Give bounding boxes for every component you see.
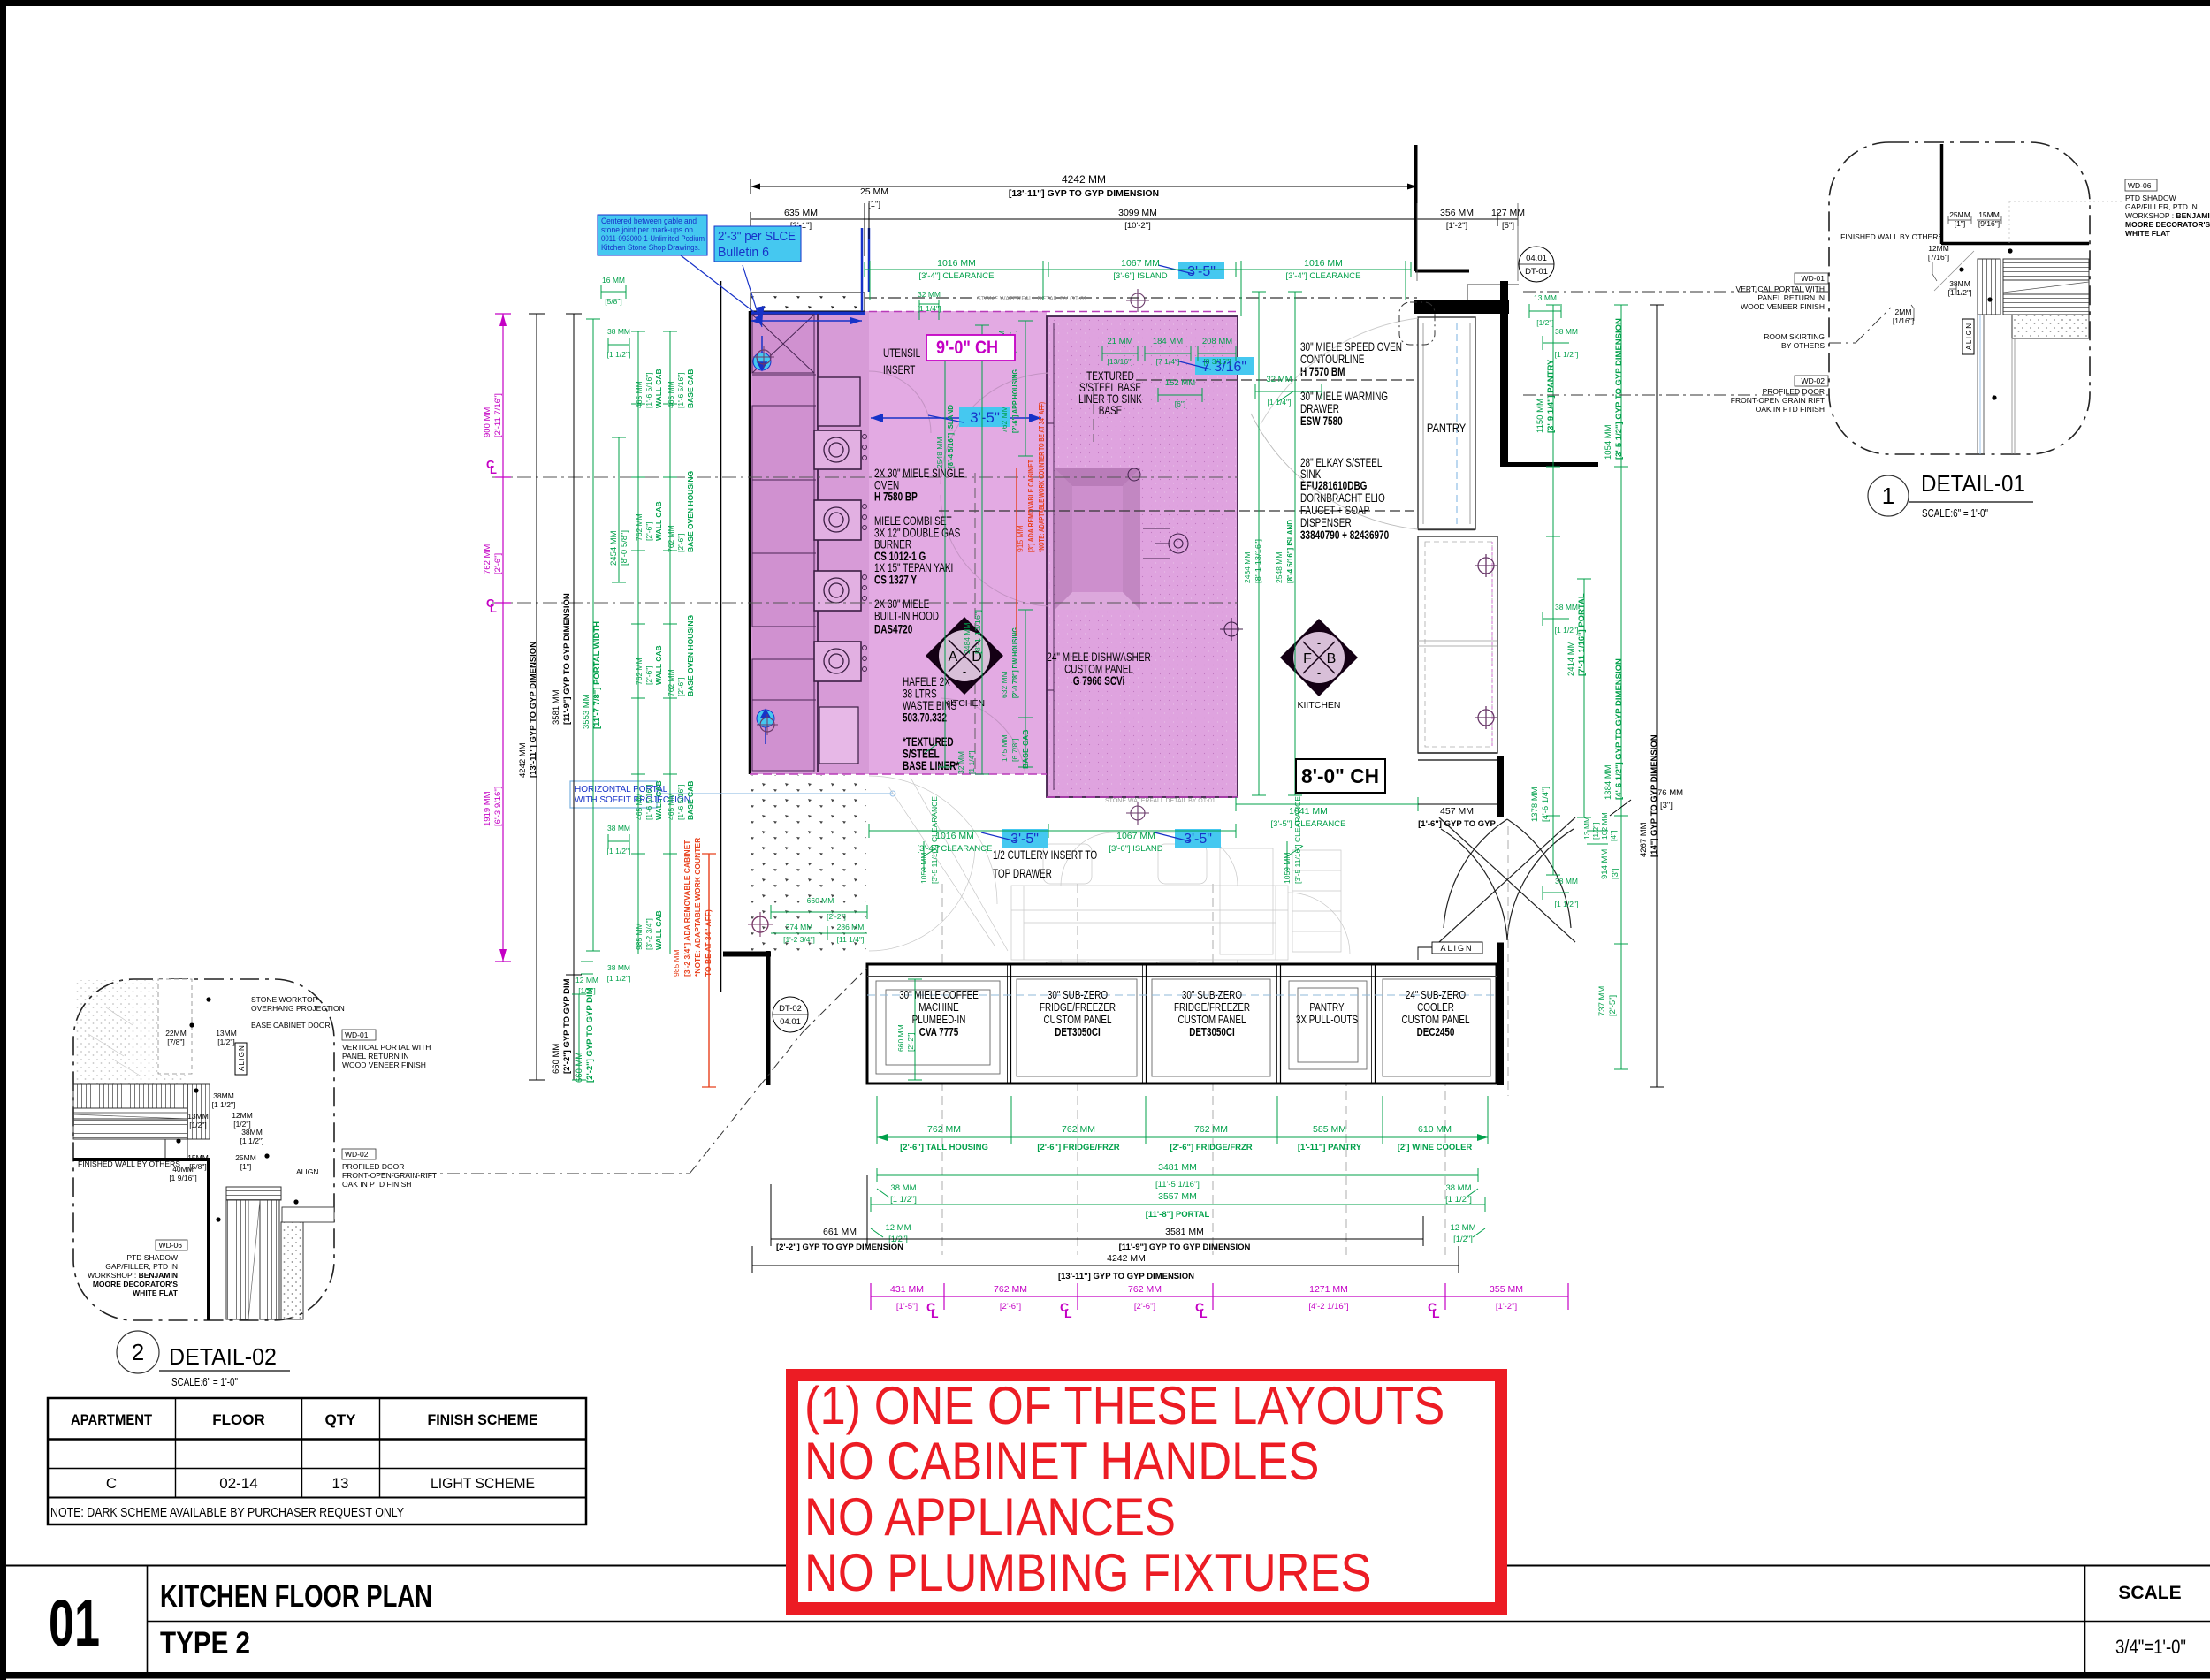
svg-text:[1'-2 3/4"]: [1'-2 3/4"] xyxy=(783,935,815,944)
svg-text:1016 MM: 1016 MM xyxy=(935,831,974,841)
svg-text:465 MM: 465 MM xyxy=(667,381,675,408)
svg-text:1067 MM: 1067 MM xyxy=(1121,258,1160,269)
svg-text:CS 1327 Y: CS 1327 Y xyxy=(874,573,917,587)
svg-text:13: 13 xyxy=(332,1475,349,1492)
svg-text:BASE: BASE xyxy=(1099,403,1123,417)
svg-text:[2'-5"]: [2'-5"] xyxy=(1608,995,1618,1016)
svg-text:38 MM: 38 MM xyxy=(1555,877,1578,886)
svg-text:[1 1/2"]: [1 1/2"] xyxy=(607,350,631,359)
svg-text:PLUMBED-IN: PLUMBED-IN xyxy=(912,1015,966,1027)
svg-text:13MM: 13MM xyxy=(216,1029,237,1038)
svg-text:1378 MM: 1378 MM xyxy=(1530,787,1540,822)
svg-text:04.01: 04.01 xyxy=(1526,254,1547,263)
svg-text:ROOM SKIRTING: ROOM SKIRTING xyxy=(1764,332,1825,341)
svg-text:STONE WATERFALL DETAIL BY OT-0: STONE WATERFALL DETAIL BY OT-01 xyxy=(977,296,1087,302)
svg-text:KITCHEN FLOOR PLAN: KITCHEN FLOOR PLAN xyxy=(160,1579,432,1614)
svg-text:16 MM: 16 MM xyxy=(602,276,625,285)
svg-text:CUSTOM PANEL: CUSTOM PANEL xyxy=(1044,1015,1112,1027)
svg-text:PANTRY: PANTRY xyxy=(1427,422,1467,435)
svg-text:1067 MM: 1067 MM xyxy=(1116,831,1155,841)
svg-text:APARTMENT: APARTMENT xyxy=(71,1411,153,1428)
svg-text:3553 MM: 3553 MM xyxy=(582,694,591,729)
svg-text:[1 1/2"]: [1 1/2"] xyxy=(1555,626,1579,635)
svg-text:[4"]: [4"] xyxy=(1609,831,1618,841)
svg-text:[3'-4"] CLEARANCE: [3'-4"] CLEARANCE xyxy=(918,844,993,854)
svg-text:431 MM: 431 MM xyxy=(890,1284,924,1295)
svg-text:WHITE FLAT: WHITE FLAT xyxy=(2125,229,2171,238)
svg-text:PTD SHADOW: PTD SHADOW xyxy=(2125,194,2176,202)
svg-text:[1'-6 5/16"]: [1'-6 5/16"] xyxy=(644,784,653,820)
svg-text:12 MM: 12 MM xyxy=(1450,1223,1475,1233)
svg-text:184 MM: 184 MM xyxy=(1153,337,1183,346)
svg-text:WORKSHOP : BENJAMIN: WORKSHOP : BENJAMIN xyxy=(2125,211,2210,220)
svg-text:PROFILED DOOR: PROFILED DOOR xyxy=(1763,387,1825,396)
svg-text:900 MM: 900 MM xyxy=(483,407,492,437)
svg-text:[2'-2"] GYP TO GYP DIMENSION: [2'-2"] GYP TO GYP DIMENSION xyxy=(776,1243,903,1252)
svg-text:[6 7/8"]: [6 7/8"] xyxy=(1010,738,1019,762)
svg-text:[11'-9"] GYP TO GYP DIMENSION: [11'-9"] GYP TO GYP DIMENSION xyxy=(1119,1243,1251,1252)
svg-text:[3'] ADA REMOVABLE CABINET: [3'] ADA REMOVABLE CABINET xyxy=(1026,459,1035,552)
svg-text:H 7580 BP: H 7580 BP xyxy=(874,490,918,504)
svg-text:457 MM: 457 MM xyxy=(1440,806,1474,817)
svg-text:WOOD VENEER FINISH: WOOD VENEER FINISH xyxy=(1741,302,1825,311)
svg-text:3'-5": 3'-5" xyxy=(970,409,1000,426)
svg-text:QTY: QTY xyxy=(325,1411,357,1428)
svg-text:762 MM: 762 MM xyxy=(1000,406,1009,433)
svg-text:25MM: 25MM xyxy=(235,1153,256,1162)
svg-text:H 7570 BM: H 7570 BM xyxy=(1300,364,1345,378)
svg-text:WALL CAB: WALL CAB xyxy=(654,645,663,685)
svg-text:-: - xyxy=(1317,666,1321,680)
svg-text:[1'-6"] GYP TO GYP: [1'-6"] GYP TO GYP xyxy=(1418,819,1496,829)
svg-text:[13'-11"] GYP TO GYP DIMENSION: [13'-11"] GYP TO GYP DIMENSION xyxy=(529,642,538,778)
svg-text:LIGHT SCHEME: LIGHT SCHEME xyxy=(431,1475,535,1492)
svg-text:30" SUB-ZERO: 30" SUB-ZERO xyxy=(1182,990,1242,1002)
svg-text:ALIGN: ALIGN xyxy=(1965,322,1973,350)
svg-text:STONE WATERFALL DETAIL BY OT-0: STONE WATERFALL DETAIL BY OT-01 xyxy=(1105,798,1215,804)
svg-text:[10'-2"]: [10'-2"] xyxy=(1124,221,1150,231)
svg-text:585 MM: 585 MM xyxy=(1313,1124,1346,1135)
svg-text:[1'-6 5/16"]: [1'-6 5/16"] xyxy=(676,372,685,408)
svg-text:[1/2"]: [1/2"] xyxy=(1453,1235,1473,1244)
svg-text:ALIGN: ALIGN xyxy=(238,1045,246,1071)
svg-text:[2'-6"]: [2'-6"] xyxy=(644,665,653,685)
svg-text:32 MM: 32 MM xyxy=(918,290,941,299)
svg-text:985 MM: 985 MM xyxy=(672,949,681,977)
svg-text:[7 1/4"]: [7 1/4"] xyxy=(1156,357,1180,366)
svg-text:762 MM: 762 MM xyxy=(635,658,644,685)
svg-text:[9/16"]: [9/16"] xyxy=(1978,219,2000,228)
svg-text:[3'-2 3/4"] ADA REMOVABLE CABI: [3'-2 3/4"] ADA REMOVABLE CABINET xyxy=(682,840,691,977)
svg-text:3557 MM: 3557 MM xyxy=(1158,1191,1197,1202)
svg-text:[1 1/2"]: [1 1/2"] xyxy=(1555,900,1579,908)
svg-text:175 MM: 175 MM xyxy=(1000,734,1009,762)
svg-text:661 MM: 661 MM xyxy=(823,1227,857,1237)
svg-text:985 MM: 985 MM xyxy=(635,923,644,950)
svg-text:FRONT-OPEN GRAIN RIFT: FRONT-OPEN GRAIN RIFT xyxy=(1731,396,1825,405)
svg-text:FRIDGE/FREEZER: FRIDGE/FREEZER xyxy=(1174,1002,1250,1015)
svg-text:DT-01: DT-01 xyxy=(1525,267,1548,277)
svg-text:ALIGN: ALIGN xyxy=(1440,944,1473,953)
svg-text:BASE OVEN HOUSING: BASE OVEN HOUSING xyxy=(686,471,695,552)
svg-text:[4'-6 1/4"]: [4'-6 1/4"] xyxy=(1541,787,1551,822)
svg-text:0011-093000-1-Unlimited Podium: 0011-093000-1-Unlimited Podium xyxy=(601,234,705,243)
svg-text:[7/16"]: [7/16"] xyxy=(1928,253,1949,262)
svg-text:FINISHED WALL BY OTHERS: FINISHED WALL BY OTHERS xyxy=(1840,232,1943,241)
svg-text:L: L xyxy=(931,1306,939,1320)
svg-text:DET3050CI: DET3050CI xyxy=(1189,1027,1235,1039)
svg-text:MOORE DECORATOR'S: MOORE DECORATOR'S xyxy=(93,1280,178,1289)
svg-text:30" MIELE COFFEE: 30" MIELE COFFEE xyxy=(899,990,979,1002)
svg-text:PANEL RETURN IN: PANEL RETURN IN xyxy=(1757,293,1825,302)
svg-text:3099 MM: 3099 MM xyxy=(1118,208,1157,218)
svg-text:[1 1/2"]: [1 1/2"] xyxy=(212,1100,236,1109)
svg-text:[14"] GYP TO GYP DIMENSION: [14"] GYP TO GYP DIMENSION xyxy=(1650,734,1659,857)
svg-text:L: L xyxy=(490,463,497,476)
svg-text:762 MM: 762 MM xyxy=(994,1284,1027,1295)
svg-text:76 MM: 76 MM xyxy=(1657,788,1683,798)
svg-text:1054 MM: 1054 MM xyxy=(1604,424,1613,460)
svg-text:NO APPLIANCES: NO APPLIANCES xyxy=(804,1487,1176,1547)
svg-text:[1/2"]: [1/2"] xyxy=(1591,822,1600,840)
svg-text:KIITCHEN: KIITCHEN xyxy=(1297,700,1340,711)
svg-text:[3'-4"] CLEARANCE: [3'-4"] CLEARANCE xyxy=(1286,271,1361,281)
svg-text:8'-0" CH: 8'-0" CH xyxy=(1301,764,1379,787)
svg-text:-: - xyxy=(963,665,966,678)
svg-text:[3'-2 3/4"]: [3'-2 3/4"] xyxy=(644,918,653,950)
svg-text:-: - xyxy=(1317,636,1321,650)
svg-text:[1"]: [1"] xyxy=(868,200,880,209)
svg-text:[13'-11"] GYP TO GYP DIMENSION: [13'-11"] GYP TO GYP DIMENSION xyxy=(1058,1272,1194,1281)
svg-text:286 MM: 286 MM xyxy=(837,923,865,931)
svg-text:[6'-3 9/16"]: [6'-3 9/16"] xyxy=(493,787,503,826)
svg-text:660 MM: 660 MM xyxy=(807,896,834,905)
svg-text:38MM: 38MM xyxy=(1949,279,1970,288)
svg-text:BASE LINER*: BASE LINER* xyxy=(903,758,960,772)
svg-text:465 MM: 465 MM xyxy=(635,793,644,820)
svg-text:[3'-5 11/16"] CLEARANCE: [3'-5 11/16"] CLEARANCE xyxy=(930,796,939,884)
svg-text:1059 MM: 1059 MM xyxy=(919,853,928,884)
svg-text:762 MM: 762 MM xyxy=(927,1124,961,1135)
svg-text:38 MM: 38 MM xyxy=(1445,1183,1471,1193)
svg-text:[2'-6"] APP HOUSING: [2'-6"] APP HOUSING xyxy=(1010,369,1019,433)
svg-text:BASE CAB: BASE CAB xyxy=(686,781,695,820)
svg-text:[1'-6 5/16"]: [1'-6 5/16"] xyxy=(644,372,653,408)
svg-text:[11'-5 1/16"]: [11'-5 1/16"] xyxy=(1155,1180,1200,1190)
svg-text:WD-02: WD-02 xyxy=(345,1150,369,1159)
svg-text:503.70.332: 503.70.332 xyxy=(903,711,947,725)
svg-text:G 7966 SCVi: G 7966 SCVi xyxy=(1073,673,1125,688)
svg-text:[13/16"]: [13/16"] xyxy=(1107,357,1132,366)
svg-text:WD-06: WD-06 xyxy=(159,1241,183,1250)
svg-text:1919 MM: 1919 MM xyxy=(483,791,492,826)
svg-text:38 MM: 38 MM xyxy=(1555,327,1578,336)
svg-text:Centered between gable and: Centered between gable and xyxy=(601,217,697,225)
svg-text:WHITE FLAT: WHITE FLAT xyxy=(133,1289,179,1297)
svg-text:COOLER: COOLER xyxy=(1417,1002,1454,1015)
svg-text:WD-02: WD-02 xyxy=(1802,376,1825,385)
svg-text:1016 MM: 1016 MM xyxy=(1304,258,1343,269)
svg-text:[8'-4 5/16"] ISLAND: [8'-4 5/16"] ISLAND xyxy=(946,405,955,468)
svg-text:SCALE: SCALE xyxy=(2118,1583,2181,1603)
svg-text:PANTRY: PANTRY xyxy=(1309,1002,1344,1015)
svg-text:2484 MM: 2484 MM xyxy=(963,623,972,654)
svg-text:TO BE AT 34" AFF): TO BE AT 34" AFF) xyxy=(704,909,713,977)
svg-text:3/4"=1'-0": 3/4"=1'-0" xyxy=(2115,1636,2186,1658)
svg-text:[5/8"]: [5/8"] xyxy=(605,297,622,306)
svg-text:914 MM: 914 MM xyxy=(1600,849,1610,879)
svg-text:[3'-5 11/16"] CLEARANCE: [3'-5 11/16"] CLEARANCE xyxy=(1293,796,1302,884)
svg-text:CVA 7775: CVA 7775 xyxy=(919,1027,959,1039)
svg-text:FINISH SCHEME: FINISH SCHEME xyxy=(428,1411,538,1428)
svg-text:3'-5": 3'-5" xyxy=(1187,264,1215,279)
svg-text:[8'-1 13/16"]: [8'-1 13/16"] xyxy=(1254,539,1262,583)
svg-text:FRONT-OPEN-GRAIN-RIFT: FRONT-OPEN-GRAIN-RIFT xyxy=(342,1171,437,1180)
svg-text:1: 1 xyxy=(1882,483,1894,509)
svg-text:[1/2"]: [1/2"] xyxy=(189,1121,207,1129)
svg-text:BASE CAB: BASE CAB xyxy=(686,369,695,408)
svg-text:[1 1/2"]: [1 1/2"] xyxy=(1555,350,1579,359)
svg-text:33840790 + 82436970: 33840790 + 82436970 xyxy=(1300,528,1389,542)
svg-text:B: B xyxy=(1327,651,1337,666)
svg-text:DT-02: DT-02 xyxy=(779,1004,802,1014)
svg-text:BASE CAB: BASE CAB xyxy=(1021,730,1030,769)
svg-text:[3'-9 1/4"] PANTRY: [3'-9 1/4"] PANTRY xyxy=(1546,359,1556,433)
svg-text:[4'-2 1/16"]: [4'-2 1/16"] xyxy=(1308,1302,1348,1311)
svg-text:SCALE:6" = 1'-0": SCALE:6" = 1'-0" xyxy=(1922,506,1988,520)
svg-text:[7/8"]: [7/8"] xyxy=(167,1038,185,1046)
svg-text:[4'-6 1/2"] GYP TO GYP DIMENSI: [4'-6 1/2"] GYP TO GYP DIMENSION xyxy=(1614,658,1624,800)
svg-text:2454 MM: 2454 MM xyxy=(609,530,619,566)
svg-text:UTENSIL: UTENSIL xyxy=(883,346,920,360)
svg-text:660 MM: 660 MM xyxy=(575,1053,584,1083)
svg-text:04.01: 04.01 xyxy=(780,1017,801,1027)
svg-text:[2'-6"] FRIDGE/FRZR: [2'-6"] FRIDGE/FRZR xyxy=(1037,1143,1119,1152)
svg-text:1059 MM: 1059 MM xyxy=(1283,853,1292,884)
svg-text:stone joint per mark-ups on: stone joint per mark-ups on xyxy=(601,225,693,234)
svg-text:[2'-2"]: [2'-2"] xyxy=(827,912,846,921)
svg-text:L: L xyxy=(1200,1306,1208,1320)
svg-text:2'-3" per SLCE: 2'-3" per SLCE xyxy=(718,229,796,244)
svg-text:FINISHED WALL BY OTHERS: FINISHED WALL BY OTHERS xyxy=(78,1159,180,1168)
svg-text:915 MM: 915 MM xyxy=(1016,525,1025,552)
svg-text:OAK IN PTD FINISH: OAK IN PTD FINISH xyxy=(1756,405,1825,414)
svg-text:[11'-9"] GYP TO GYP DIMENSION: [11'-9"] GYP TO GYP DIMENSION xyxy=(562,593,572,725)
svg-text:4242 MM: 4242 MM xyxy=(1062,173,1106,186)
svg-text:2MM: 2MM xyxy=(1895,308,1912,316)
svg-text:DEC2450: DEC2450 xyxy=(1417,1027,1455,1039)
svg-text:[5"]: [5"] xyxy=(1502,221,1514,231)
svg-text:152 MM: 152 MM xyxy=(1165,378,1195,388)
svg-text:OAK IN PTD FINISH: OAK IN PTD FINISH xyxy=(342,1180,411,1189)
svg-text:[11 1/4"]: [11 1/4"] xyxy=(837,935,865,944)
svg-text:NO CABINET HANDLES: NO CABINET HANDLES xyxy=(804,1432,1319,1491)
svg-text:TYPE 2: TYPE 2 xyxy=(160,1626,250,1661)
svg-text:GAP/FILLER, PTD IN: GAP/FILLER, PTD IN xyxy=(105,1262,178,1271)
svg-text:13MM: 13MM xyxy=(187,1112,209,1121)
svg-text:762 MM: 762 MM xyxy=(667,669,675,696)
svg-text:3X PULL-OUTS: 3X PULL-OUTS xyxy=(1296,1015,1358,1027)
svg-text:[2'-6"]: [2'-6"] xyxy=(676,677,685,696)
svg-text:[1'-5"]: [1'-5"] xyxy=(896,1302,918,1311)
svg-text:[2'-6"]: [2'-6"] xyxy=(493,553,503,574)
svg-text:[2'-2"]: [2'-2"] xyxy=(906,1032,915,1052)
svg-text:24" SUB-ZERO: 24" SUB-ZERO xyxy=(1406,990,1466,1002)
svg-text:ESW 7580: ESW 7580 xyxy=(1300,414,1343,428)
svg-text:[2'-6"] TALL HOUSING: [2'-6"] TALL HOUSING xyxy=(900,1143,988,1152)
svg-text:127 MM: 127 MM xyxy=(1491,208,1525,218)
svg-text:VERTICAL PORTAL WITH: VERTICAL PORTAL WITH xyxy=(1736,285,1825,293)
svg-text:[1"]: [1"] xyxy=(240,1162,251,1171)
svg-text:1150 MM: 1150 MM xyxy=(1536,399,1545,433)
svg-text:[8'-1 13/16"]: [8'-1 13/16"] xyxy=(973,610,982,654)
svg-text:PANEL RETURN IN: PANEL RETURN IN xyxy=(342,1052,409,1060)
svg-text:[11'-8"] PORTAL: [11'-8"] PORTAL xyxy=(1146,1210,1210,1220)
svg-text:9'-0" CH: 9'-0" CH xyxy=(936,338,998,358)
svg-text:[2'-0 7/8"] DW HOUSING: [2'-0 7/8"] DW HOUSING xyxy=(1010,627,1019,698)
svg-text:12MM: 12MM xyxy=(232,1111,253,1120)
svg-text:[3"]: [3"] xyxy=(1660,801,1673,810)
svg-text:OVERHANG PROJECTION: OVERHANG PROJECTION xyxy=(251,1004,345,1013)
svg-text:GAP/FILLER, PTD IN: GAP/FILLER, PTD IN xyxy=(2125,202,2198,211)
svg-text:[7'-11 1/16"] PORTAL: [7'-11 1/16"] PORTAL xyxy=(1577,593,1587,676)
svg-text:4242 MM: 4242 MM xyxy=(518,742,528,778)
svg-text:[11'-7 7/8"] PORTAL WIDTH: [11'-7 7/8"] PORTAL WIDTH xyxy=(592,621,602,729)
svg-text:[2'-6"] FRIDGE/FRZR: [2'-6"] FRIDGE/FRZR xyxy=(1170,1143,1252,1152)
svg-text:[2'-6"]: [2'-6"] xyxy=(1000,1302,1021,1311)
svg-text:VERTICAL PORTAL WITH: VERTICAL PORTAL WITH xyxy=(342,1043,431,1052)
svg-text:WD-06: WD-06 xyxy=(2128,181,2152,190)
svg-text:[1/2"]: [1/2"] xyxy=(217,1038,235,1046)
svg-text:BUILT-IN HOOD: BUILT-IN HOOD xyxy=(874,609,939,623)
svg-text:38MM: 38MM xyxy=(241,1128,263,1136)
svg-text:WALL CAB: WALL CAB xyxy=(654,501,663,541)
svg-text:NOTE: DARK SCHEME AVAILABLE B: NOTE: DARK SCHEME AVAILABLE BY PURCHASER… xyxy=(50,1505,404,1520)
svg-text:3581 MM: 3581 MM xyxy=(1165,1227,1204,1237)
svg-text:[1 1/4"]: [1 1/4"] xyxy=(918,304,941,313)
svg-text:[1/16"]: [1/16"] xyxy=(1893,316,1914,325)
svg-text:[3'-5"] CLEARANCE: [3'-5"] CLEARANCE xyxy=(1271,819,1346,829)
svg-text:[1 9/16"]: [1 9/16"] xyxy=(169,1174,196,1182)
svg-text:A: A xyxy=(949,650,958,665)
svg-text:L: L xyxy=(1064,1306,1072,1320)
svg-text:1384 MM: 1384 MM xyxy=(1604,764,1613,800)
svg-text:356 MM: 356 MM xyxy=(1440,208,1474,218)
svg-text:DETAIL-02: DETAIL-02 xyxy=(169,1343,277,1370)
svg-text:BASE CABINET DOOR: BASE CABINET DOOR xyxy=(251,1021,331,1030)
svg-text:(1) ONE OF THESE LAYOUTS: (1) ONE OF THESE LAYOUTS xyxy=(804,1376,1444,1435)
svg-text:2: 2 xyxy=(132,1339,144,1365)
svg-text:2548 MM: 2548 MM xyxy=(935,437,944,468)
svg-text:[6"]: [6"] xyxy=(1175,399,1185,408)
svg-text:[1/2"]: [1/2"] xyxy=(1536,318,1554,327)
svg-text:MOORE DECORATOR'S: MOORE DECORATOR'S xyxy=(2125,220,2210,229)
svg-text:22MM: 22MM xyxy=(165,1029,187,1038)
svg-text:30" SUB-ZERO: 30" SUB-ZERO xyxy=(1048,990,1108,1002)
svg-text:15MM: 15MM xyxy=(1978,210,2000,219)
svg-text:WD-01: WD-01 xyxy=(345,1030,369,1039)
svg-text:32 MM: 32 MM xyxy=(956,751,965,774)
svg-text:[1 1/2"]: [1 1/2"] xyxy=(1948,288,1972,297)
svg-text:3'-5": 3'-5" xyxy=(1184,832,1212,847)
svg-text:38MM: 38MM xyxy=(213,1091,234,1100)
svg-text:[1 1/2"]: [1 1/2"] xyxy=(890,1195,917,1205)
svg-text:38 MM: 38 MM xyxy=(607,824,630,832)
svg-text:[2'-2"] GYP TO GYP DIM: [2'-2"] GYP TO GYP DIM xyxy=(562,978,572,1074)
svg-text:WD-01: WD-01 xyxy=(1802,274,1825,283)
svg-text:762 MM: 762 MM xyxy=(1194,1124,1228,1135)
svg-text:WALL CAB: WALL CAB xyxy=(654,910,663,950)
svg-text:660 MM: 660 MM xyxy=(552,1044,561,1074)
svg-text:[8'-0 5/8"]: [8'-0 5/8"] xyxy=(620,530,629,566)
svg-text:L: L xyxy=(490,602,497,615)
svg-text:PROFILED DOOR: PROFILED DOOR xyxy=(342,1162,404,1171)
svg-text:632 MM: 632 MM xyxy=(1000,671,1009,698)
svg-text:WALL CAB: WALL CAB xyxy=(654,780,663,820)
svg-text:MACHINE: MACHINE xyxy=(918,1002,959,1015)
svg-text:102 MM: 102 MM xyxy=(1600,812,1609,840)
svg-text:355 MM: 355 MM xyxy=(1490,1284,1523,1295)
svg-text:ALIGN: ALIGN xyxy=(296,1167,319,1176)
svg-text:762 MM: 762 MM xyxy=(483,544,492,574)
svg-text:WORKSHOP : BENJAMIN: WORKSHOP : BENJAMIN xyxy=(88,1271,178,1280)
svg-text:01: 01 xyxy=(49,1586,100,1660)
svg-text:PTD SHADOW: PTD SHADOW xyxy=(126,1253,178,1262)
svg-text:1271 MM: 1271 MM xyxy=(1309,1284,1348,1295)
svg-text:FLOOR: FLOOR xyxy=(212,1411,265,1428)
svg-text:STONE WORKTOP: STONE WORKTOP xyxy=(251,995,318,1004)
svg-text:3481 MM: 3481 MM xyxy=(1158,1162,1197,1173)
svg-text:[1 1/2"]: [1 1/2"] xyxy=(607,974,631,983)
svg-text:[3']: [3'] xyxy=(1611,869,1620,879)
svg-text:4267 MM: 4267 MM xyxy=(1639,822,1649,857)
svg-text:[3'-6"] ISLAND: [3'-6"] ISLAND xyxy=(1109,844,1162,854)
svg-text:762 MM: 762 MM xyxy=(1062,1124,1095,1135)
svg-text:465 MM: 465 MM xyxy=(635,381,644,408)
svg-text:[1'-11"] PANTRY: [1'-11"] PANTRY xyxy=(1298,1143,1362,1152)
svg-text:[1'-6 5/16"]: [1'-6 5/16"] xyxy=(676,784,685,820)
svg-text:[2'-2"] GYP TO GYP DIM: [2'-2"] GYP TO GYP DIM xyxy=(585,987,595,1083)
svg-text:[8 3/16"]: [8 3/16"] xyxy=(1203,357,1231,366)
svg-text:3581 MM: 3581 MM xyxy=(552,689,561,725)
svg-text:[1 1/4"]: [1 1/4"] xyxy=(967,750,976,774)
svg-text:25 MM: 25 MM xyxy=(860,186,888,197)
svg-text:762 MM: 762 MM xyxy=(1128,1284,1162,1295)
svg-text:Bulletin 6: Bulletin 6 xyxy=(718,245,769,260)
svg-text:13 MM: 13 MM xyxy=(1582,817,1591,840)
svg-text:TOP DRAWER: TOP DRAWER xyxy=(993,866,1052,880)
svg-text:12 MM: 12 MM xyxy=(575,976,598,984)
svg-text:DETAIL-01: DETAIL-01 xyxy=(1921,470,2025,497)
svg-text:660 MM: 660 MM xyxy=(896,1024,905,1052)
svg-text:13 MM: 13 MM xyxy=(1534,293,1557,302)
svg-text:32 MM: 32 MM xyxy=(1266,375,1292,384)
svg-text:NO PLUMBING FIXTURES: NO PLUMBING FIXTURES xyxy=(804,1543,1372,1602)
svg-text:15MM: 15MM xyxy=(187,1153,209,1162)
svg-text:[1 1/4"]: [1 1/4"] xyxy=(1268,398,1292,407)
svg-text:INSERT: INSERT xyxy=(883,362,915,376)
svg-text:CUSTOM PANEL: CUSTOM PANEL xyxy=(1178,1015,1246,1027)
svg-text:1/2 CUTLERY INSERT TO: 1/2 CUTLERY INSERT TO xyxy=(993,848,1097,862)
svg-text:[3'-5 1/2"] GYP TO GYP DIMENSI: [3'-5 1/2"] GYP TO GYP DIMENSION xyxy=(1614,318,1624,460)
svg-text:25MM: 25MM xyxy=(1949,210,1970,219)
svg-text:[3'-4"] CLEARANCE: [3'-4"] CLEARANCE xyxy=(919,271,994,281)
svg-text:WALL CAB: WALL CAB xyxy=(654,369,663,408)
svg-text:2414 MM: 2414 MM xyxy=(1566,641,1576,676)
svg-text:465 MM: 465 MM xyxy=(667,793,675,820)
svg-text:DAS4720: DAS4720 xyxy=(874,622,913,636)
svg-text:2548 MM: 2548 MM xyxy=(1275,552,1284,583)
